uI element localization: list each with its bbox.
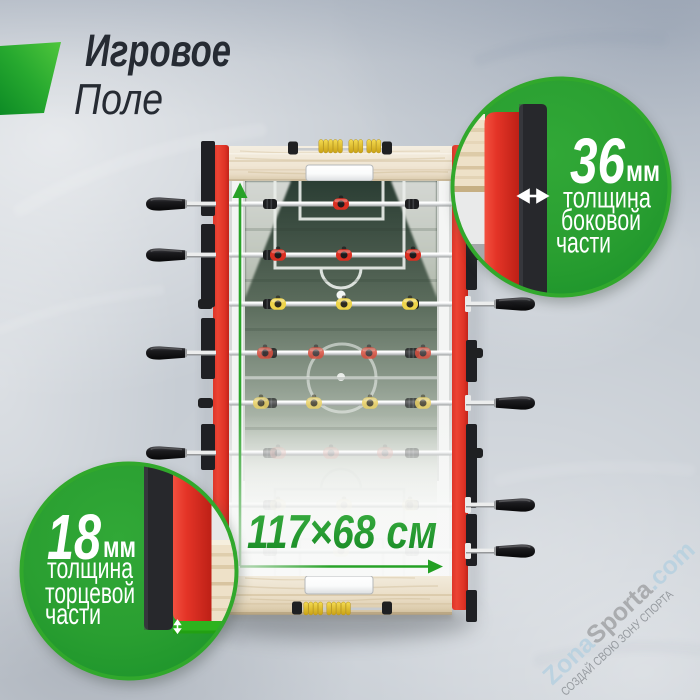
svg-text:части: части	[45, 598, 101, 631]
svg-text:117×68 см: 117×68 см	[247, 505, 437, 558]
svg-text:части: части	[556, 227, 611, 260]
svg-text:Игровое: Игровое	[85, 25, 231, 76]
svg-text:Поле: Поле	[74, 75, 163, 124]
svg-text:ZonaSporta.com: ZonaSporta.com	[537, 536, 700, 691]
